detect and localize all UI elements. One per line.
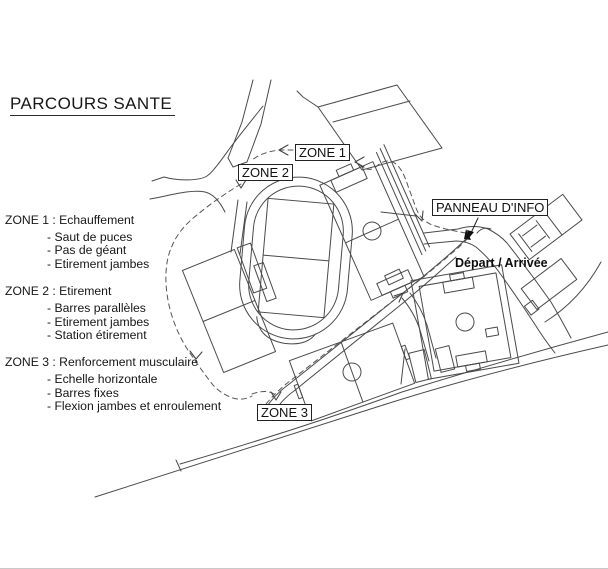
- terrain-lines: [150, 106, 263, 212]
- station-rect: [385, 269, 404, 285]
- panneau-info-label: PANNEAU D'INFO: [432, 199, 548, 216]
- legend-section-zone3: ZONE 3 : Renforcement musculaire - Echel…: [5, 355, 245, 413]
- page-title: PARCOURS SANTE: [10, 94, 175, 116]
- legend: ZONE 1 : Echauffement - Saut de puces - …: [5, 213, 245, 427]
- legend-section-zone1: ZONE 1 : Echauffement - Saut de puces - …: [5, 213, 245, 271]
- zone-1-label: ZONE 1: [295, 144, 350, 161]
- depart-arrivee-label: Départ / Arrivée: [455, 256, 548, 270]
- panneau-pointer-icon: [467, 218, 478, 238]
- legend-item: - Pas de géant: [47, 244, 245, 257]
- legend-item: - Barres fixes: [47, 387, 245, 400]
- zone-2-label: ZONE 2: [238, 164, 293, 181]
- legend-item: - Etirement jambes: [47, 316, 245, 329]
- legend-zone3-title: ZONE 3 : Renforcement musculaire: [5, 355, 245, 369]
- site-map-document: PARCOURS SANTE ZONE 1 : Echauffement - S…: [0, 0, 608, 569]
- running-track: [235, 173, 357, 349]
- legend-zone1-title: ZONE 1 : Echauffement: [5, 213, 245, 227]
- legend-item: - Barres parallèles: [47, 302, 245, 315]
- zone-3-label: ZONE 3: [257, 404, 312, 421]
- legend-item: - Station étirement: [47, 329, 245, 342]
- legend-item: - Etirement jambes: [47, 258, 245, 271]
- soccer-field-top: [315, 145, 442, 307]
- legend-zone2-title: ZONE 2 : Etirement: [5, 284, 245, 298]
- legend-item: - Flexion jambes et enroulement: [47, 400, 245, 413]
- legend-section-zone2: ZONE 2 : Etirement - Barres parallèles -…: [5, 284, 245, 342]
- legend-item: - Echelle horizontale: [47, 373, 245, 386]
- legend-item: - Saut de puces: [47, 231, 245, 244]
- station-rect: [485, 327, 498, 337]
